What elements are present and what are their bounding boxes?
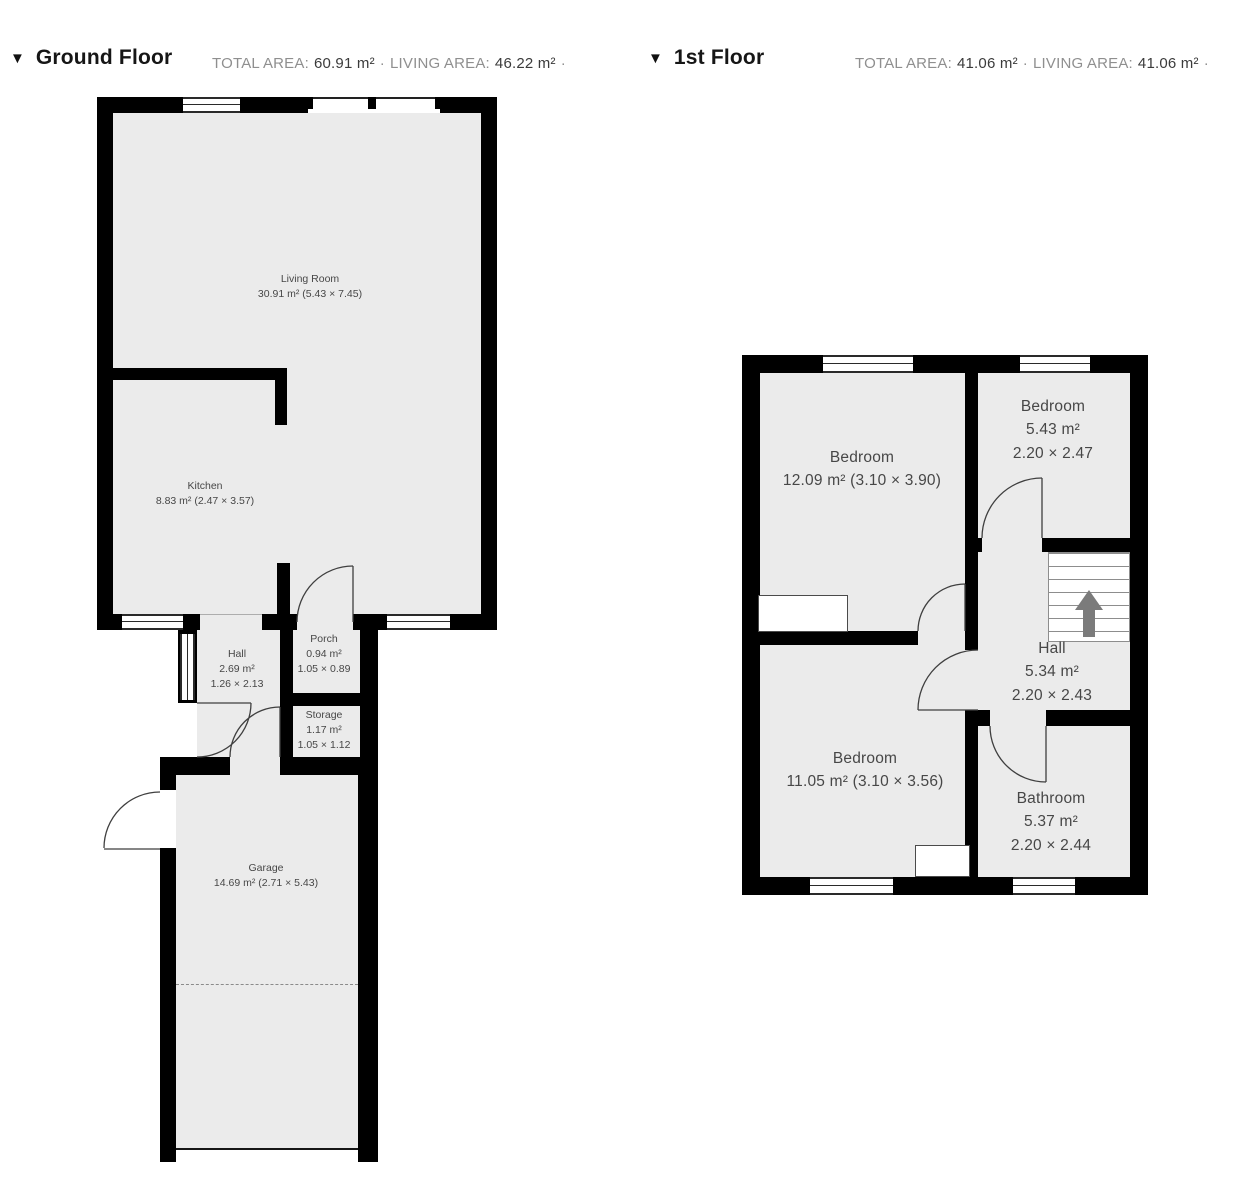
room-area: 8.83 m² (2.47 × 3.57) [156, 494, 254, 509]
floorplan-page: { "colors": { "wall": "#000000", "room_f… [0, 0, 1242, 1201]
bedroom3-doorway [965, 650, 978, 710]
kitchen-partition-wall [275, 368, 287, 425]
front-doorway [178, 703, 197, 757]
ground-floor-stats: TOTAL AREA:60.91 m²·LIVING AREA:46.22 m²… [212, 55, 571, 72]
room-label-bedroom-3: Bedroom 11.05 m² (3.10 × 3.56) [786, 747, 943, 794]
built-in-cupboard [758, 595, 848, 632]
room-label-living-room: Living Room 30.91 m² (5.43 × 7.45) [258, 272, 362, 302]
first-floor-header[interactable]: ▼ 1st Floor [648, 46, 764, 70]
bathroom-doorway [990, 710, 1046, 726]
room-name: Bedroom [1013, 395, 1093, 418]
separator-dot: · [561, 55, 566, 72]
living-area-label: LIVING AREA: [1033, 55, 1133, 72]
room-dims: 2.20 × 2.43 [1012, 684, 1092, 707]
living-area-value: 46.22 m² [495, 55, 556, 72]
room-name: Living Room [258, 272, 362, 287]
room-name: Bedroom [786, 747, 943, 770]
living-room-kitchen-floor [113, 113, 481, 614]
room-area: 12.09 m² (3.10 × 3.90) [783, 469, 941, 492]
total-area-value: 41.06 m² [957, 55, 1018, 72]
room-dims: 2.20 × 2.44 [1011, 834, 1091, 857]
room-name: Hall [1012, 637, 1092, 660]
garage-floor [176, 775, 358, 1148]
floor-title: Ground Floor [36, 46, 173, 70]
room-label-hall: Hall 2.69 m² 1.26 × 2.13 [211, 647, 264, 693]
built-in-cupboard [915, 845, 970, 877]
room-area: 30.91 m² (5.43 × 7.45) [258, 287, 362, 302]
bedroom1-doorway [918, 631, 965, 645]
room-label-storage: Storage 1.17 m² 1.05 × 1.12 [298, 708, 351, 754]
window [823, 355, 913, 373]
total-area-label: TOTAL AREA: [212, 55, 309, 72]
door-arc [104, 792, 160, 848]
total-area-value: 60.91 m² [314, 55, 375, 72]
window-jamb [435, 97, 440, 109]
separator-dot: · [1204, 55, 1209, 72]
room-area: 0.94 m² [298, 647, 351, 662]
bedroom-divider-wall [965, 373, 978, 645]
room-area: 2.69 m² [211, 662, 264, 677]
room-name: Garage [214, 861, 318, 876]
porch-living-doorway [297, 614, 353, 630]
collapse-triangle-icon: ▼ [10, 50, 25, 67]
room-area: 14.69 m² (2.71 × 5.43) [214, 876, 318, 891]
hall-porch-wall [280, 630, 293, 757]
ground-floor-header[interactable]: ▼ Ground Floor [10, 46, 172, 70]
room-area: 5.43 m² [1013, 418, 1093, 441]
window [122, 614, 183, 630]
first-floor-stats: TOTAL AREA:41.06 m²·LIVING AREA:41.06 m²… [855, 55, 1214, 72]
room-dims: 1.26 × 2.13 [211, 678, 264, 693]
garage-door [176, 1148, 358, 1162]
window [1020, 355, 1090, 373]
porch-storage-wall [293, 693, 360, 706]
kitchen-partition-wall [113, 368, 287, 380]
window [183, 97, 240, 113]
room-label-garage: Garage 14.69 m² (2.71 × 5.43) [214, 861, 318, 891]
room-label-kitchen: Kitchen 8.83 m² (2.47 × 3.57) [156, 479, 254, 509]
floor-title: 1st Floor [674, 46, 764, 70]
living-area-value: 41.06 m² [1138, 55, 1199, 72]
bedroom2-doorway [982, 538, 1042, 552]
room-area: 1.17 m² [298, 723, 351, 738]
room-label-hall: Hall 5.34 m² 2.20 × 2.43 [1012, 637, 1092, 707]
room-name: Bedroom [783, 446, 941, 469]
room-label-bedroom-1: Bedroom 12.09 m² (3.10 × 3.90) [783, 446, 941, 493]
garage-side-doorway [160, 790, 176, 848]
stairs-up-arrow-icon [1075, 590, 1103, 610]
wall-stub [277, 563, 290, 614]
room-area: 11.05 m² (3.10 × 3.56) [786, 770, 943, 793]
room-name: Hall [211, 647, 264, 662]
window-jamb [308, 97, 313, 109]
room-label-porch: Porch 0.94 m² 1.05 × 0.89 [298, 632, 351, 678]
window-mullion [368, 97, 376, 109]
room-name: Porch [298, 632, 351, 647]
room-area: 5.34 m² [1012, 660, 1092, 683]
window [1013, 877, 1075, 895]
room-area: 5.37 m² [1011, 810, 1091, 833]
room-name: Bathroom [1011, 787, 1091, 810]
garage-dashed-line [176, 984, 358, 985]
stairs-up-arrow-icon [1083, 609, 1095, 637]
collapse-triangle-icon: ▼ [648, 50, 663, 67]
window [810, 877, 893, 895]
living-area-label: LIVING AREA: [390, 55, 490, 72]
hall-garage-doorway [230, 757, 280, 775]
room-dims: 2.20 × 2.47 [1013, 442, 1093, 465]
room-label-bedroom-2: Bedroom 5.43 m² 2.20 × 2.47 [1013, 395, 1093, 465]
total-area-label: TOTAL AREA: [855, 55, 952, 72]
room-dims: 1.05 × 1.12 [298, 739, 351, 754]
kitchen-hall-opening [200, 614, 262, 630]
window [387, 614, 450, 630]
room-name: Kitchen [156, 479, 254, 494]
window [180, 634, 195, 700]
room-label-bathroom: Bathroom 5.37 m² 2.20 × 2.44 [1011, 787, 1091, 857]
room-name: Storage [298, 708, 351, 723]
separator-dot: · [380, 55, 385, 72]
separator-dot: · [1023, 55, 1028, 72]
room-dims: 1.05 × 0.89 [298, 663, 351, 678]
